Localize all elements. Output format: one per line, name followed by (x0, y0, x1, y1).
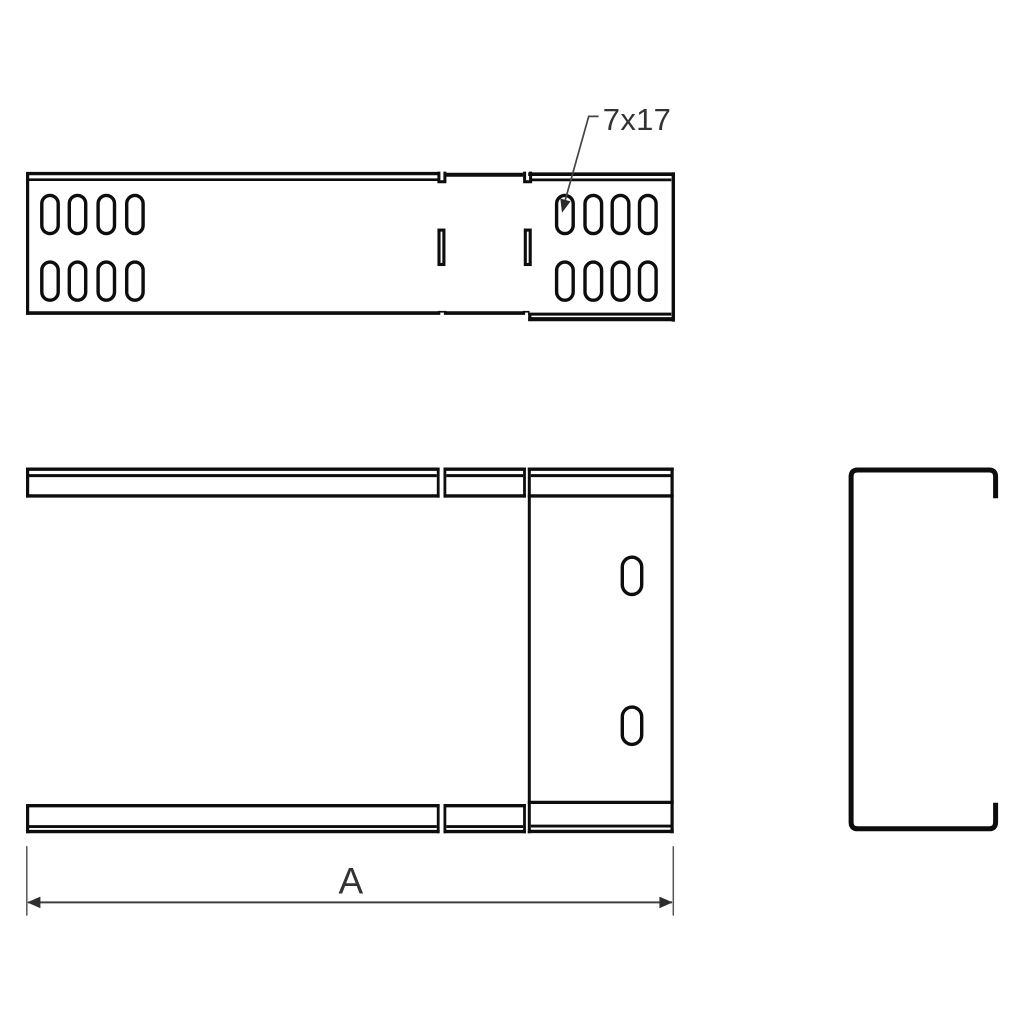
svg-text:7x17: 7x17 (603, 102, 671, 137)
svg-text:A: A (339, 860, 364, 901)
